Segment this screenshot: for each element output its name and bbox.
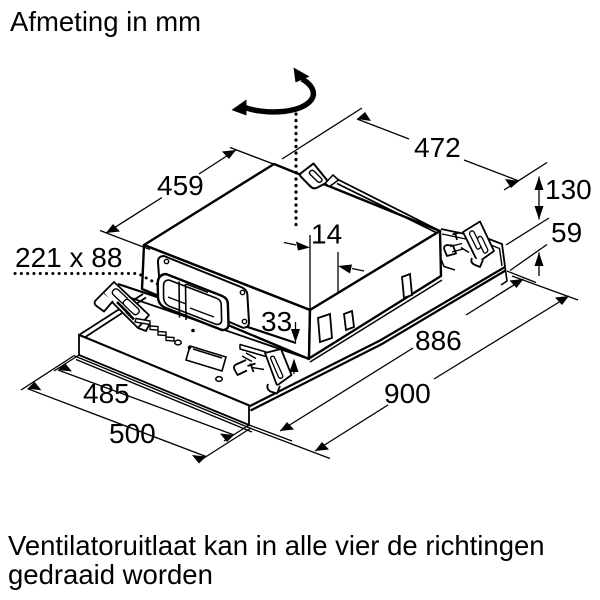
svg-text:221 x 88: 221 x 88	[15, 242, 122, 273]
svg-text:130: 130	[545, 174, 592, 205]
svg-text:gedraaid worden: gedraaid worden	[8, 559, 213, 590]
svg-text:472: 472	[414, 132, 461, 163]
svg-text:459: 459	[157, 170, 204, 201]
svg-text:59: 59	[551, 217, 582, 248]
svg-text:14: 14	[311, 219, 342, 250]
svg-text:886: 886	[415, 325, 462, 356]
svg-text:900: 900	[384, 378, 431, 409]
svg-text:Afmeting in mm: Afmeting in mm	[10, 6, 201, 37]
svg-text:500: 500	[109, 418, 156, 449]
svg-text:33: 33	[261, 306, 292, 337]
svg-text:485: 485	[83, 378, 130, 409]
svg-text:Ventilatoruitlaat kan in alle: Ventilatoruitlaat kan in alle vier de ri…	[8, 530, 545, 561]
